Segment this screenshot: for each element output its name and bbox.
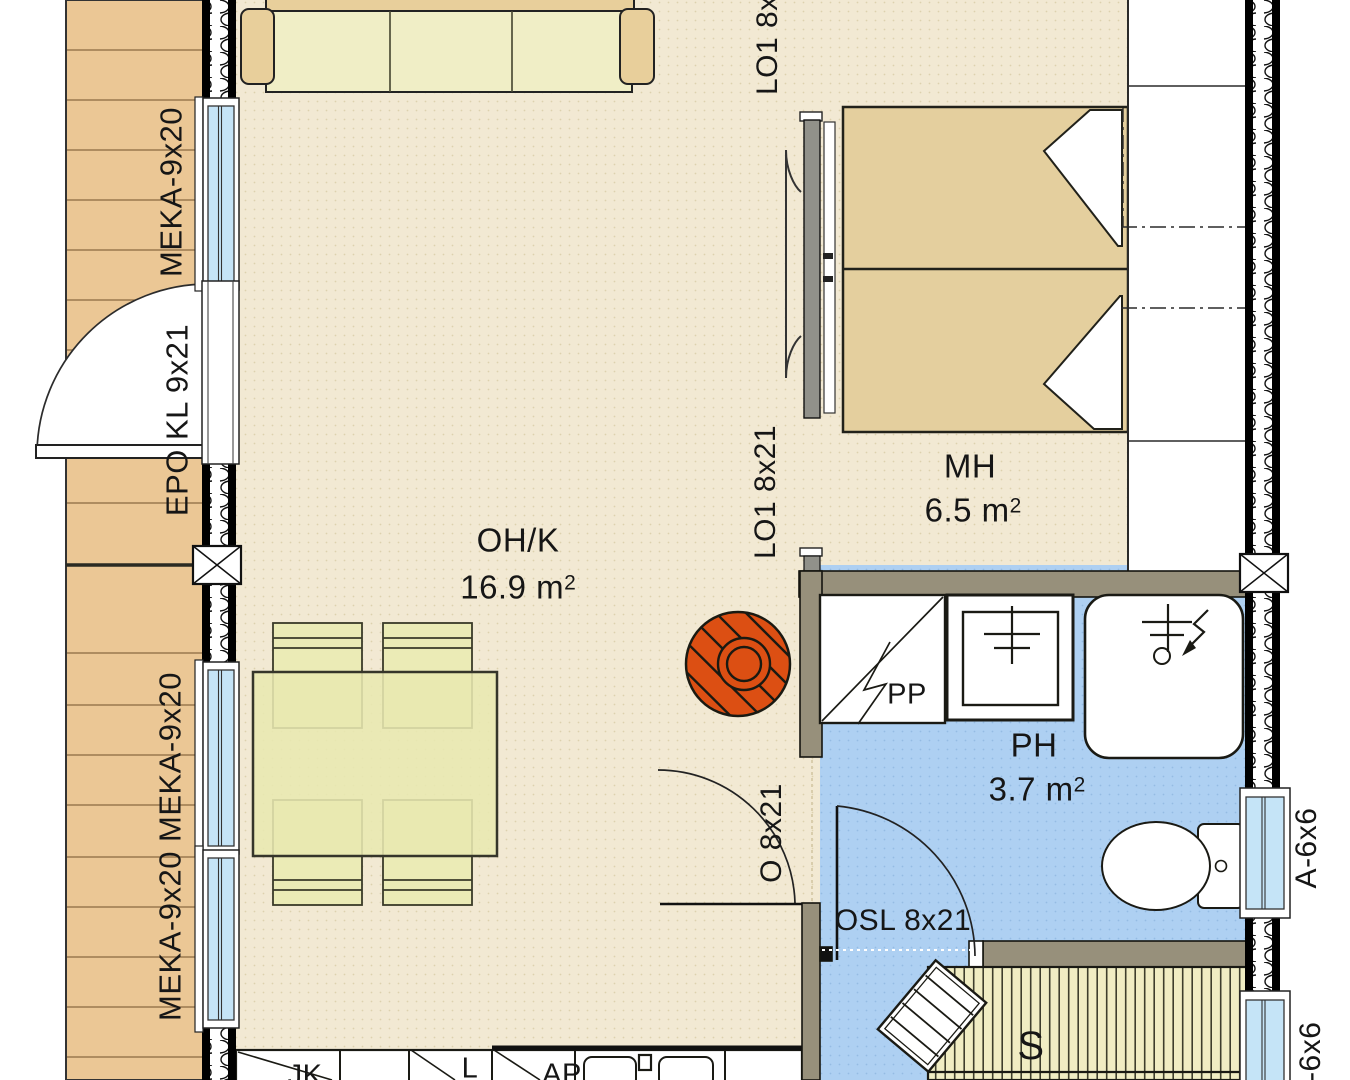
sauna-door-jamb: [969, 941, 983, 967]
toilet-icon: [1102, 822, 1244, 910]
sauna-benches: [928, 967, 1248, 1080]
sofa: [241, 0, 654, 92]
label-room-bedroom: MH: [944, 450, 996, 483]
floor-plan-drawing: [0, 0, 1350, 1080]
window-bath-icon: [1240, 788, 1290, 918]
label-entry-door: EPO KL 9x21: [162, 324, 193, 516]
window-meka-top-icon: [195, 97, 239, 291]
label-stove: L: [462, 1055, 479, 1080]
label-dishwasher: AP: [542, 1061, 582, 1080]
label-room-living: OH/K: [477, 524, 560, 557]
washbasin-icon: [947, 595, 1073, 720]
wall-bath-north: [799, 571, 1248, 597]
label-window-meka-top: MEKA-9x20: [156, 107, 187, 277]
label-window-sauna: A-6x6: [1296, 1022, 1326, 1080]
label-slider-bottom: LO1 8x21: [751, 425, 781, 559]
label-bath-door: O 8x21: [757, 783, 787, 883]
label-window-meka-mid: MEKA-9x20: [155, 672, 186, 842]
label-area-bathroom: 3.7 m2: [989, 773, 1086, 806]
dining-table: [253, 672, 497, 856]
label-window-bath: A-6x6: [1292, 808, 1322, 889]
junction-box-right: [1240, 554, 1288, 592]
floor-plan-canvas: MEKA-9x20 EPO KL 9x21 MEKA-9x20 MEKA-9x2…: [0, 0, 1350, 1080]
label-area-bedroom: 6.5 m2: [925, 494, 1022, 527]
double-bed: [843, 107, 1128, 432]
label-room-bathroom: PH: [1011, 729, 1058, 762]
wall-bath-west: [800, 571, 822, 757]
window-meka-bottom-icon: [195, 846, 239, 1032]
label-fridge: JK: [288, 1062, 323, 1080]
window-meka-mid-icon: [195, 660, 239, 856]
shower-icon: [1085, 595, 1243, 758]
label-sauna-door: OSL 8x21: [835, 906, 971, 936]
label-washer: PP: [887, 681, 927, 710]
wall-sauna-north: [983, 941, 1248, 967]
junction-box-left: [193, 546, 241, 584]
window-sauna-icon: [1240, 991, 1290, 1080]
label-window-meka-bottom: MEKA-9x20: [155, 851, 186, 1021]
entry-door-opening: [202, 281, 239, 464]
wardrobe: [1121, 0, 1248, 573]
wall-kitchen-sauna: [802, 903, 820, 1080]
label-room-sauna: S: [1017, 1026, 1044, 1066]
label-slider-top: LO1 8x21: [753, 0, 783, 95]
label-area-living: 16.9 m2: [460, 571, 576, 604]
